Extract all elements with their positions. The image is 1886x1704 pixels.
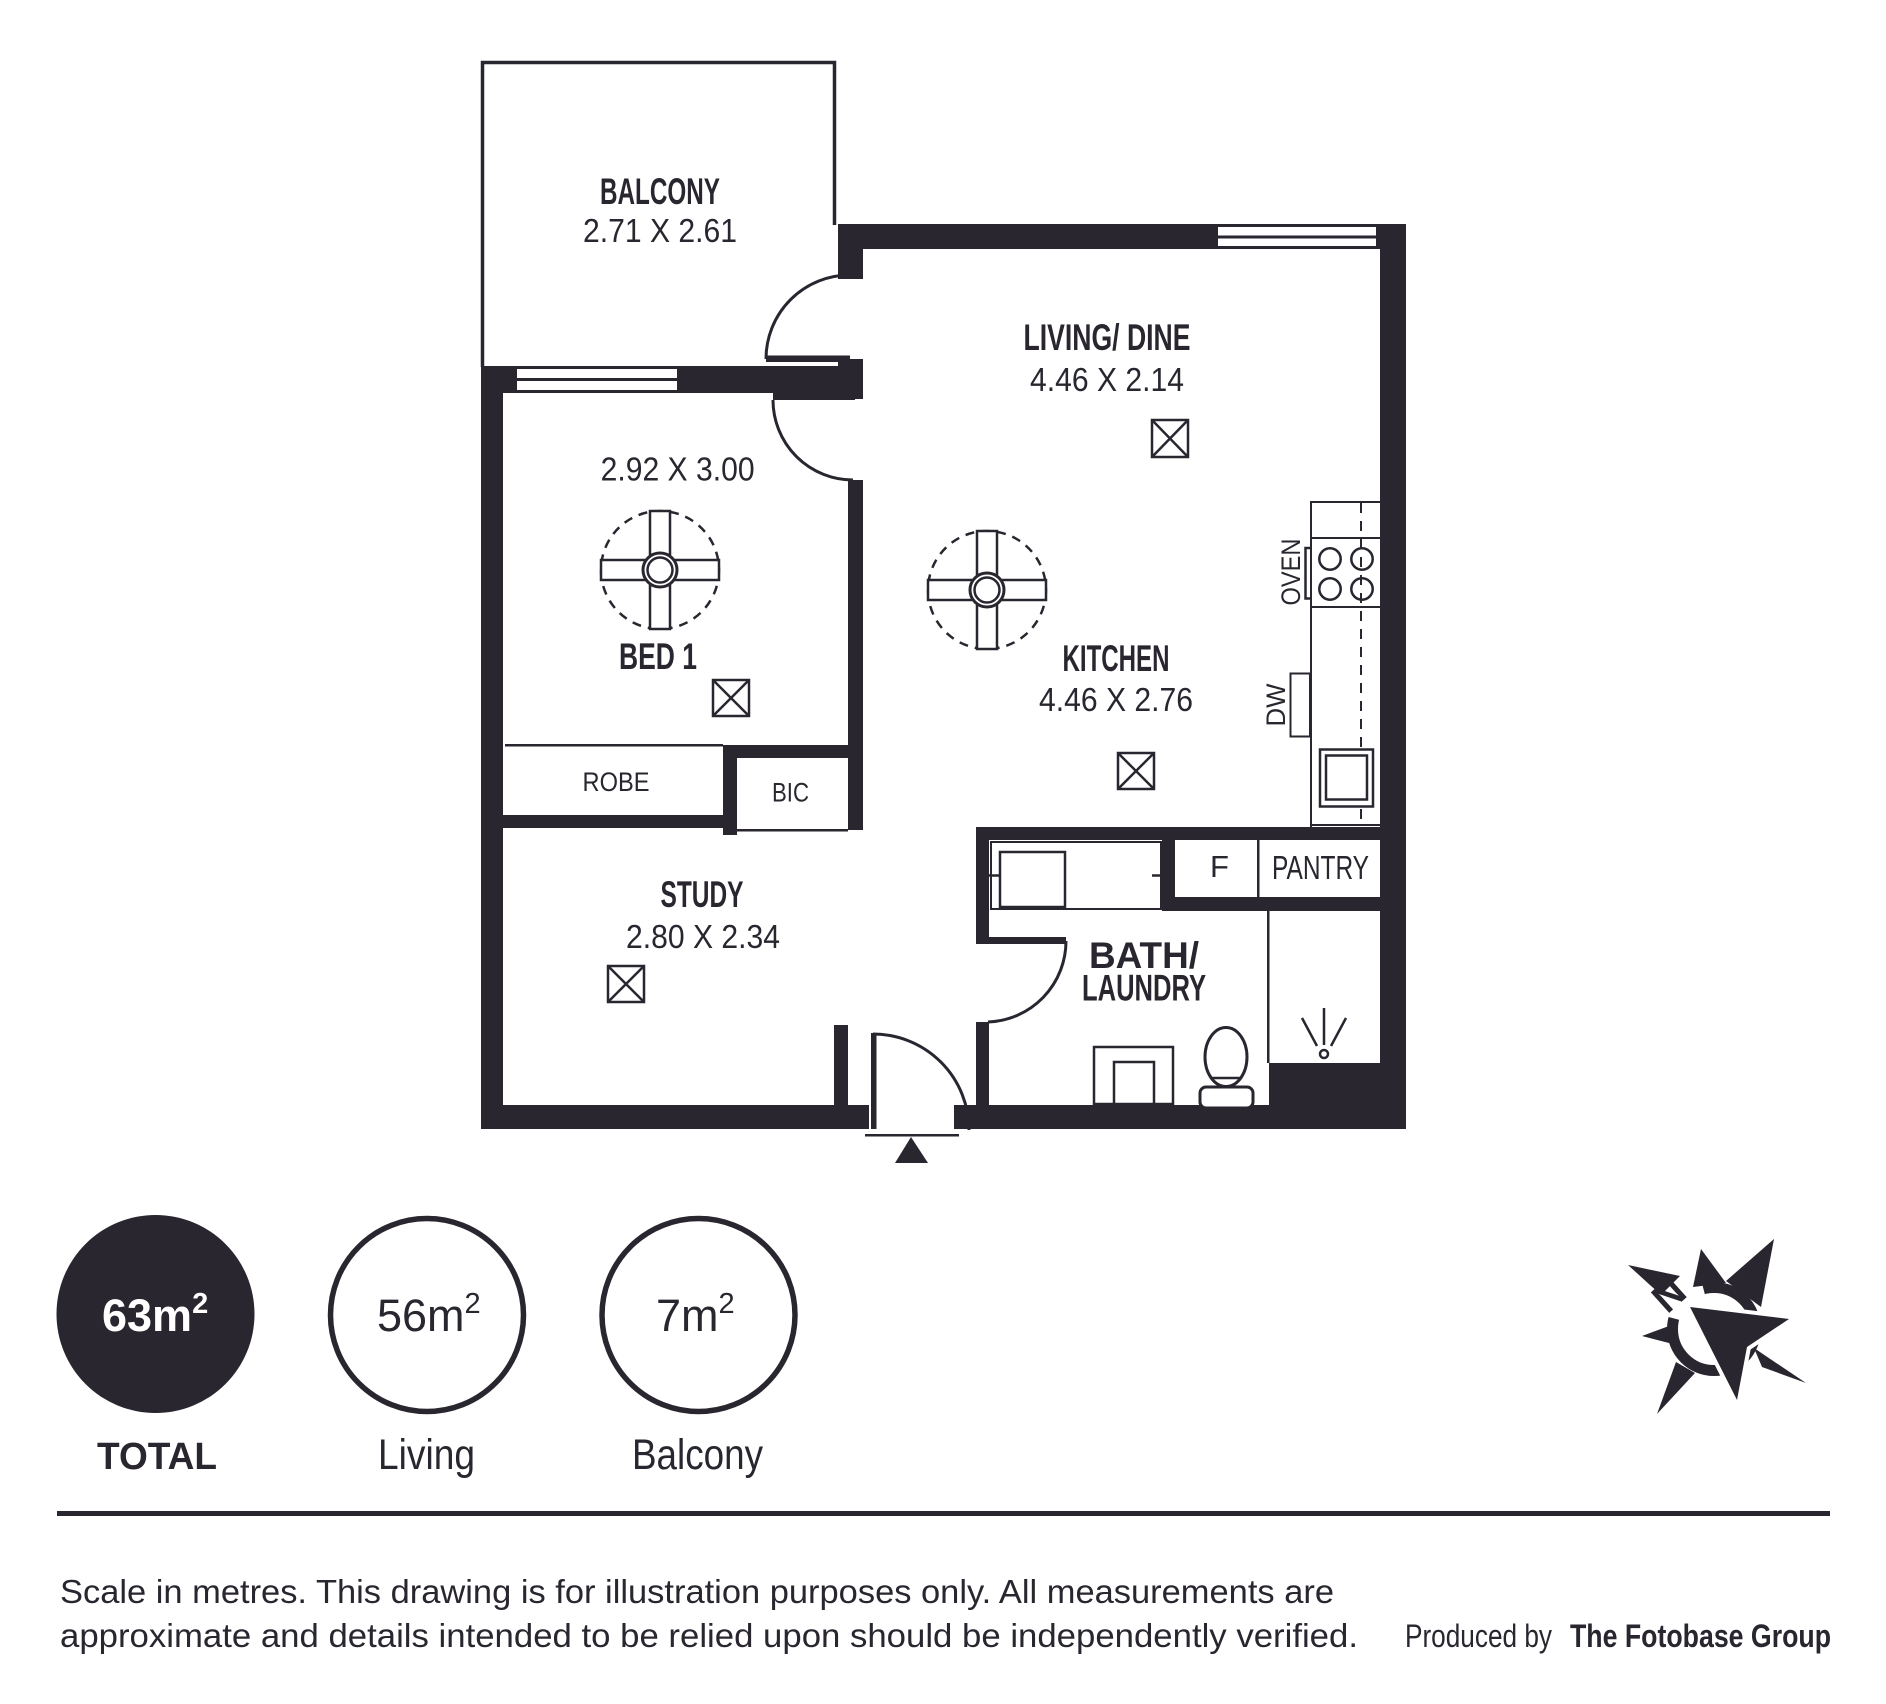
svg-text:Balcony: Balcony [632, 1431, 763, 1479]
svg-text:4.46 X 2.14: 4.46 X 2.14 [1030, 361, 1184, 398]
svg-text:PANTRY: PANTRY [1272, 849, 1369, 886]
svg-text:approximate and details intend: approximate and details intended to be r… [60, 1617, 1358, 1654]
svg-text:2.71 X 2.61: 2.71 X 2.61 [583, 212, 737, 249]
svg-text:The Fotobase Group: The Fotobase Group [1570, 1618, 1831, 1654]
svg-text:4.46 X 2.76: 4.46 X 2.76 [1039, 681, 1193, 718]
svg-text:F: F [1210, 849, 1229, 884]
svg-text:BED 1: BED 1 [619, 636, 697, 677]
svg-text:2.92 X 3.00: 2.92 X 3.00 [601, 451, 755, 488]
svg-text:TOTAL: TOTAL [97, 1436, 217, 1478]
svg-text:2.80 X 2.34: 2.80 X 2.34 [626, 918, 780, 955]
svg-text:DW: DW [1261, 683, 1291, 726]
svg-text:LIVING/ DINE: LIVING/ DINE [1024, 317, 1191, 358]
svg-text:Produced by: Produced by [1405, 1618, 1552, 1654]
svg-text:BALCONY: BALCONY [600, 171, 720, 212]
svg-text:KITCHEN: KITCHEN [1063, 638, 1170, 679]
svg-text:OVEN: OVEN [1276, 539, 1306, 606]
svg-text:BIC: BIC [772, 778, 809, 808]
svg-text:Scale in metres. This drawing: Scale in metres. This drawing is for ill… [60, 1573, 1334, 1610]
svg-text:ROBE: ROBE [583, 767, 650, 797]
svg-text:STUDY: STUDY [661, 874, 744, 915]
svg-text:LAUNDRY: LAUNDRY [1082, 968, 1206, 1009]
svg-text:Living: Living [378, 1431, 475, 1479]
